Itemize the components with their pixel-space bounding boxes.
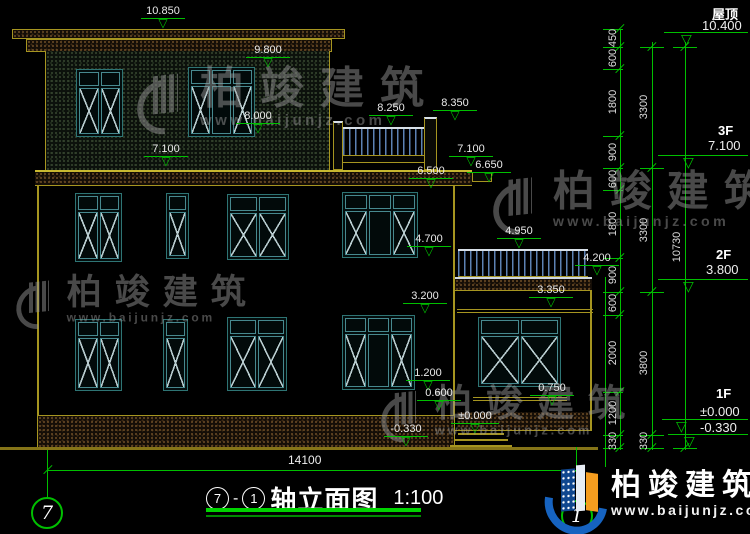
- dim-text: 1800: [607, 90, 619, 114]
- floor-label-1f: 1F: [716, 386, 731, 401]
- dim-text: 1800: [607, 212, 619, 236]
- floor-elev-3f: 7.100: [708, 138, 741, 153]
- floor-elev-1f: ±0.000: [700, 404, 740, 419]
- dim-text: 3300: [638, 218, 650, 242]
- terrace-rail-bottom: [343, 155, 424, 163]
- level-triangle-icon: ▽: [592, 265, 601, 276]
- site-logo-icon: [543, 461, 605, 527]
- dim-chain-line: [685, 42, 686, 450]
- floor-elev-2f: 3.800: [706, 262, 739, 277]
- overall-dim-text: 14100: [288, 453, 321, 467]
- dim-chain-line: [652, 42, 653, 450]
- site-logo-url: www.baijunjz.com: [611, 502, 750, 518]
- window-3f-left: [76, 69, 123, 137]
- level-marker-0000: ±0.000▽: [451, 411, 499, 434]
- dim-text: 450: [607, 29, 619, 47]
- floor-elev-1f-below: -0.330: [700, 420, 737, 435]
- level-triangle-icon: ▽: [386, 115, 395, 126]
- level-triangle-icon: ▽: [434, 400, 443, 411]
- level-marker-8350: 8.350▽: [433, 98, 477, 121]
- overall-dim-line: [48, 470, 577, 471]
- terrace-post-left: [333, 121, 343, 170]
- terrace-railing-bars: [343, 129, 424, 155]
- level-triangle-icon: ▽: [547, 395, 556, 406]
- level-triangle-icon: ▽: [470, 423, 479, 434]
- level-marker-3200: 3.200▽: [403, 291, 447, 314]
- balcony-railing-bars: [458, 251, 588, 277]
- title-underline-thin: [206, 515, 421, 517]
- terrace-post-right: [424, 117, 437, 170]
- level-marker-4200: 4.200▽: [575, 253, 619, 276]
- window-2f-3: [227, 194, 289, 260]
- title-scale: 1:100: [393, 487, 443, 510]
- title-underline-thick: [206, 508, 421, 512]
- level-marker-neg0330: -0.330▽: [384, 424, 428, 447]
- level-marker-6650: 6.650▽: [467, 160, 511, 183]
- window-1f-1: [75, 319, 122, 391]
- level-marker-9800: 9.800▽: [246, 45, 290, 68]
- level-marker-3350: 3.350▽: [529, 285, 573, 308]
- title-dash: -: [233, 490, 238, 508]
- window-1f-4: [342, 315, 415, 390]
- dim-text: 10730: [671, 232, 683, 263]
- site-logo-brand: 柏竣建筑: [611, 470, 750, 502]
- level-triangle-icon: ▽: [681, 33, 692, 46]
- level-triangle-icon: ▽: [683, 280, 694, 293]
- title-axis-end-bubble: 1: [242, 487, 265, 510]
- level-marker-0750: 0.750▽: [530, 383, 574, 406]
- level-marker-4700: 4.700▽: [407, 234, 451, 257]
- dim-text: 600: [607, 294, 619, 312]
- dim-text: 600: [607, 170, 619, 188]
- level-triangle-icon: ▽: [514, 238, 523, 249]
- site-logo: 柏竣建筑 www.baijunjz.com: [543, 461, 750, 527]
- window-1f-3: [227, 317, 287, 391]
- floor-label-3f: 3F: [718, 123, 733, 138]
- entrance-step-2: [454, 439, 508, 441]
- entrance-step-3: [450, 445, 512, 447]
- wing-belt-course: [457, 309, 593, 313]
- level-marker-8250: 8.250▽: [369, 103, 413, 126]
- level-triangle-icon: ▽: [426, 178, 435, 189]
- dim-text: 1200: [607, 401, 619, 425]
- floor-elev-roof: 10.400: [702, 18, 742, 33]
- level-triangle-icon: ▽: [158, 18, 167, 29]
- level-marker-6500: 6.500▽: [409, 166, 453, 189]
- axis-bubble-7: 7: [31, 497, 63, 529]
- floor-label-2f: 2F: [716, 247, 731, 262]
- level-triangle-icon: ▽: [683, 156, 694, 169]
- roof-slab-upper: [12, 29, 345, 39]
- level-triangle-icon: ▽: [546, 297, 555, 308]
- level-marker-8000: 8.000▽: [236, 111, 280, 134]
- level-triangle-icon: ▽: [263, 57, 272, 68]
- level-marker-0600: 0.600▽: [417, 388, 461, 411]
- window-1f-2: [163, 319, 188, 391]
- floor-slab-2f: [35, 170, 472, 186]
- window-2f-2: [166, 193, 189, 259]
- level-triangle-icon: ▽: [424, 246, 433, 257]
- axis-extension-left: [47, 450, 48, 497]
- dim-text: 3300: [638, 95, 650, 119]
- elevation-drawing: 柏竣建筑 www.baijunjz.com 柏竣建筑 www.baijunjz.…: [0, 0, 750, 534]
- title-axis-start-bubble: 7: [206, 487, 229, 510]
- level-triangle-icon: ▽: [484, 172, 493, 183]
- window-wing: [478, 317, 561, 387]
- dim-text: 3800: [638, 351, 650, 375]
- level-triangle-icon: ▽: [450, 110, 459, 121]
- level-marker-10850: 10.850▽: [141, 6, 185, 29]
- level-triangle-icon: ▽: [401, 436, 410, 447]
- marker-extension-line: [605, 277, 606, 467]
- level-triangle-icon: ▽: [684, 435, 695, 448]
- level-marker-4950: 4.950▽: [497, 226, 541, 249]
- dim-text: 330: [607, 432, 619, 450]
- dim-chain-line: [620, 29, 621, 450]
- level-triangle-icon: ▽: [420, 303, 429, 314]
- level-triangle-icon: ▽: [161, 156, 170, 167]
- dim-text: 2000: [607, 341, 619, 365]
- dim-text: 900: [607, 143, 619, 161]
- window-2f-1: [75, 193, 122, 262]
- level-marker-7100-left: 7.100▽: [144, 144, 188, 167]
- dim-text: 600: [607, 49, 619, 67]
- ground-line: [0, 447, 598, 450]
- level-triangle-icon: ▽: [253, 123, 262, 134]
- level-triangle-icon: ▽: [676, 420, 687, 433]
- watermark: 柏竣建筑 www.baijunjz.com: [494, 172, 750, 230]
- dim-text: 330: [638, 432, 650, 450]
